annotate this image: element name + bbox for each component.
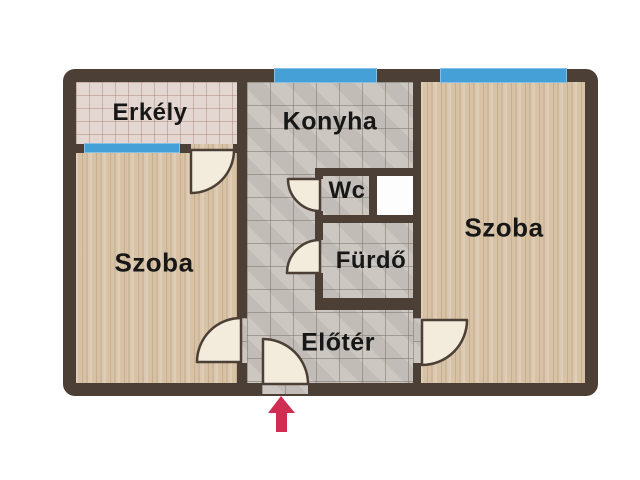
label-szoba-left: Szoba	[114, 248, 193, 279]
wc-door	[288, 179, 320, 211]
label-erkely: Erkély	[112, 99, 187, 127]
balcony-door	[191, 150, 234, 193]
label-konyha: Konyha	[283, 108, 378, 137]
entrance-arrow-icon	[262, 394, 302, 436]
label-eloter: Előtér	[301, 329, 375, 358]
label-szoba-right: Szoba	[464, 213, 543, 244]
szoba-right-door	[422, 320, 467, 365]
label-wc: Wc	[329, 177, 366, 205]
label-furdo: Fürdő	[336, 247, 406, 275]
furdo-door	[287, 240, 320, 273]
door-swings-layer	[0, 0, 640, 480]
szoba-left-door	[197, 318, 241, 362]
floor-plan: Erkély Konyha Szoba Szoba Wc Fürdő Előté…	[0, 0, 640, 480]
